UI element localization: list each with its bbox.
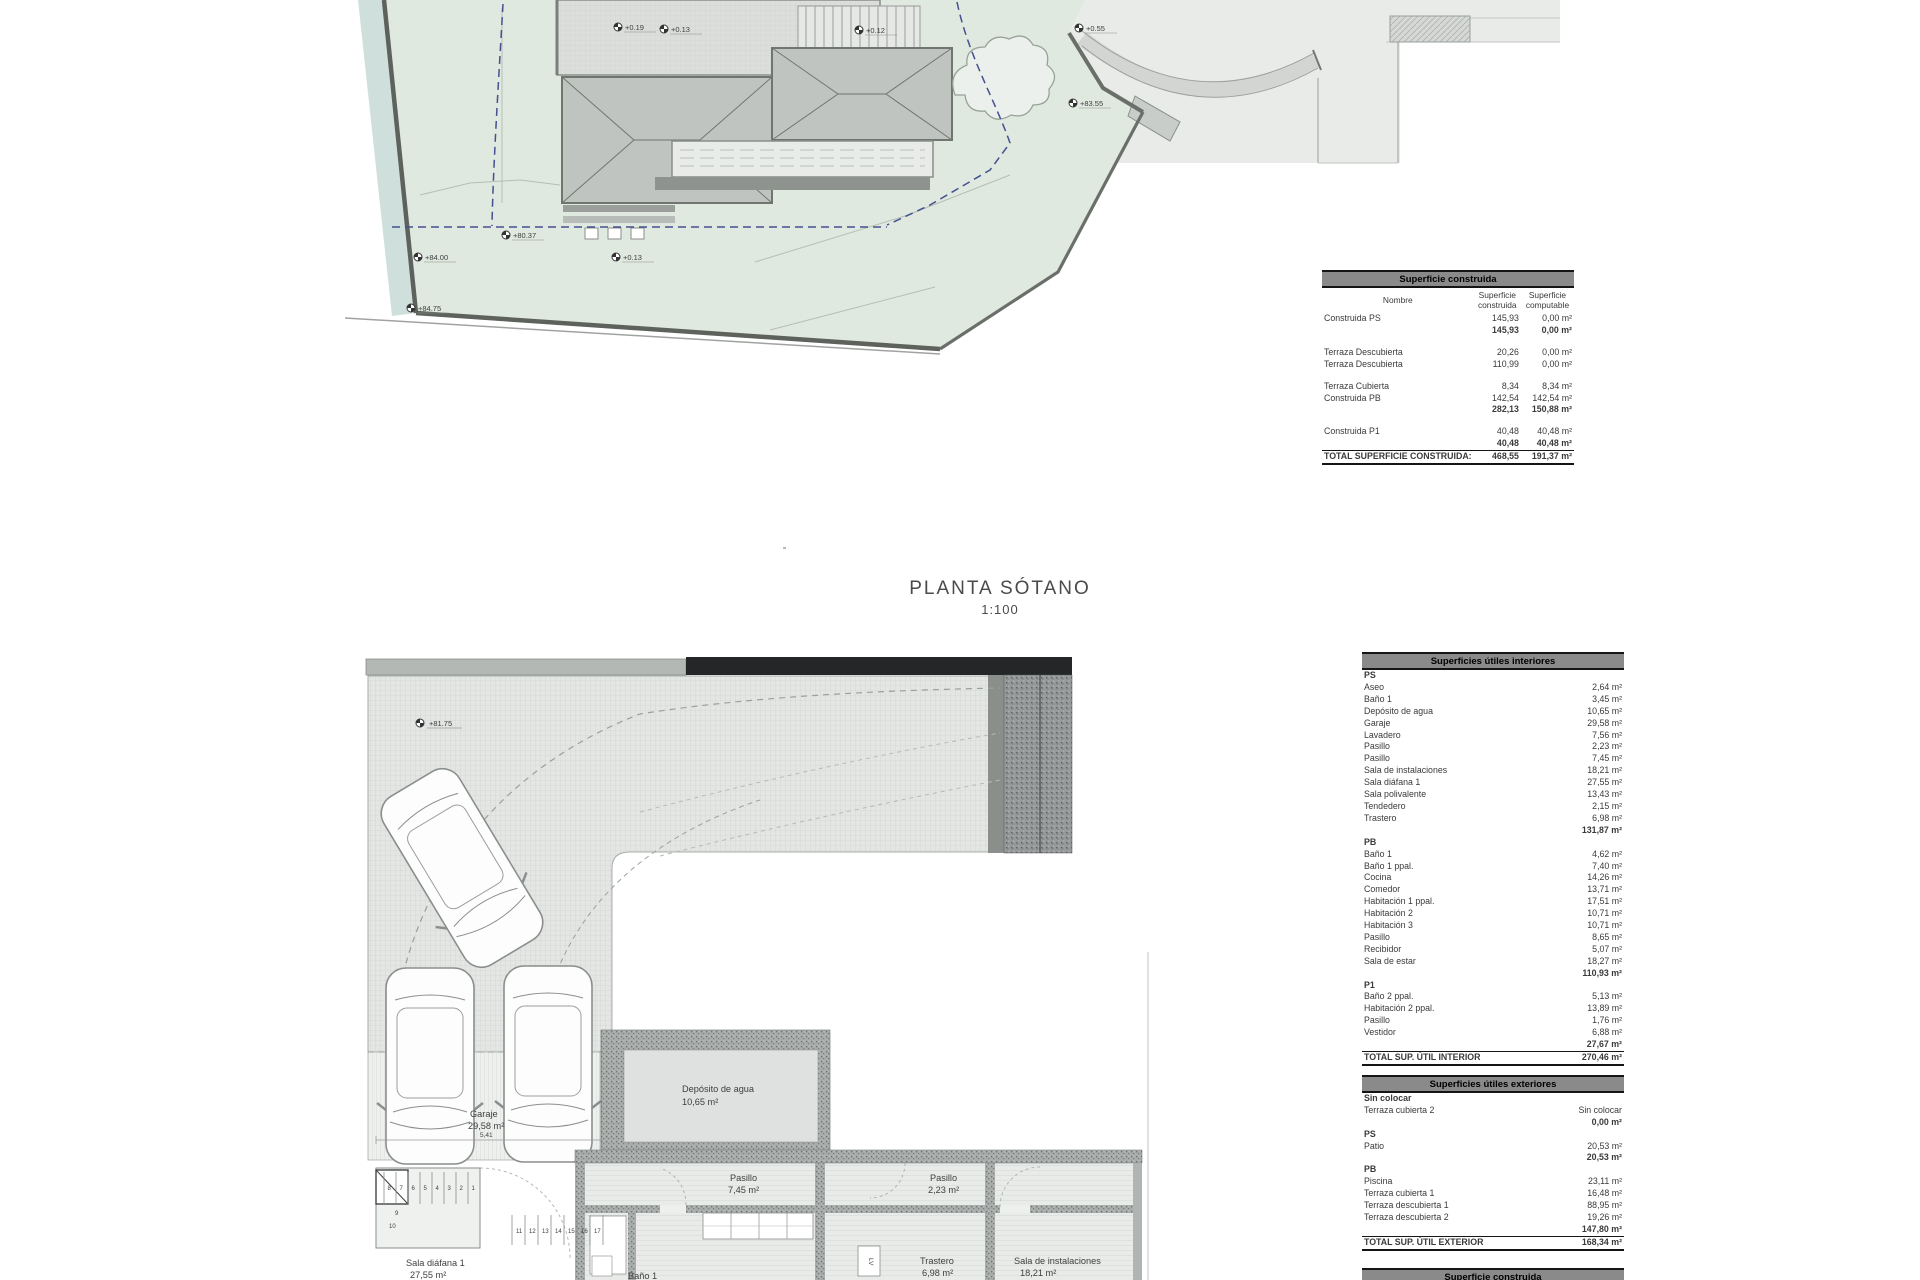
table-row [1322,416,1574,426]
table-title: Superficies útiles interiores [1362,652,1624,670]
table-row: Construida PB142,54142,54 m² [1322,393,1574,405]
table-row: Trastero6,98 m² [1362,813,1624,825]
basement-plan-drawing: 5,41 5,20 2,84 7,46 [360,650,1160,1280]
table-row: Sala de instalaciones18,21 m² [1362,765,1624,777]
stair-number: 15 [568,1229,575,1235]
table-row: Cocina14,26 m² [1362,872,1624,884]
benchmark-label: +0.13 [623,253,642,262]
table-row: Terraza descubierta 188,95 m² [1362,1200,1624,1212]
room-label: Sala de instalaciones [1014,1256,1101,1266]
table-row: Baño 13,45 m² [1362,694,1624,706]
room-area: 29,58 m² [468,1121,504,1131]
benchmark-label: +0.12 [866,26,885,35]
table-row: Lavadero7,56 m² [1362,730,1624,742]
table-row: 145,930,00 m² [1322,325,1574,337]
room-area: 27,55 m² [410,1270,446,1280]
table-row: 110,93 m² [1362,968,1624,980]
car-parked-2 [495,966,601,1162]
superficie-construida-table: Superficie construida NombreSuperficie c… [1322,270,1574,465]
top-wall-gray [366,659,686,675]
benchmark-label: +0.55 [1086,24,1105,33]
table-title: Superficies útiles exteriores [1362,1075,1624,1093]
table-row: Terraza Descubierta110,990,00 m² [1322,359,1574,371]
table-row: Vestidor6,88 m² [1362,1027,1624,1039]
benchmark-icon [407,304,415,312]
table-title: Superficie construida [1362,1268,1624,1280]
table-row: 131,87 m² [1362,825,1624,837]
benchmark-label: +84.00 [425,253,448,262]
benchmark-icon [612,253,620,261]
svg-text:+81.75: +81.75 [429,719,452,728]
room-label: Pasillo [730,1173,757,1183]
room-label: Baño 1 [628,1271,657,1280]
room-label: Garaje [470,1109,498,1119]
room-area: 7,45 m² [728,1185,759,1195]
table-row: 282,13150,88 m² [1322,404,1574,416]
table-row: 27,67 m² [1362,1039,1624,1051]
room-area: 6,98 m² [922,1268,953,1278]
table-row: 40,4840,48 m² [1322,438,1574,450]
next-table-cutoff: Superficie construida [1362,1268,1624,1280]
benchmark-label: +80.37 [513,231,536,240]
table-row: PB [1362,1164,1624,1176]
table-row: Habitación 210,71 m² [1362,908,1624,920]
table-row: Patio20,53 m² [1362,1141,1624,1153]
table-row: Pasillo7,45 m² [1362,753,1624,765]
table-row: Pasillo2,23 m² [1362,741,1624,753]
benchmark-icon [660,25,668,33]
table-row [1322,337,1574,347]
plan-title: PLANTA SÓTANO 1:100 [880,578,1120,617]
table-row: 0,00 m² [1362,1117,1624,1129]
dot-artifact [783,547,786,549]
plan-sheet: +0.19+0.13+0.12+0.55+83.55+0.13+80.37+84… [0,0,1920,1280]
table-row: TOTAL SUP. ÚTIL EXTERIOR168,34 m² [1362,1236,1624,1249]
stair-number: 12 [529,1229,536,1235]
table-row: Terraza Cubierta8,348,34 m² [1322,381,1574,393]
road-area [1060,0,1560,163]
table-row: PS [1362,670,1624,682]
table-row: PB [1362,837,1624,849]
benchmark-label: +83.55 [1080,99,1103,108]
table-row: 20,53 m² [1362,1152,1624,1164]
table-row: Aseo2,64 m² [1362,682,1624,694]
car-parked-1 [377,968,483,1164]
stairs: 87654321 11121314151617 910 [376,1168,603,1248]
pool-terrace [655,141,933,190]
benchmark-icon [414,253,422,261]
table-row: Construida P140,4840,48 m² [1322,426,1574,438]
table-row: Terraza cubierta 116,48 m² [1362,1188,1624,1200]
stair-number: 11 [516,1229,523,1235]
table-row: Pasillo1,76 m² [1362,1015,1624,1027]
appliance-label: LV [867,1258,874,1266]
table-row: Habitación 1 ppal.17,51 m² [1362,896,1624,908]
table-row: Sala polivalente13,43 m² [1362,789,1624,801]
room-label: Trastero [920,1256,954,1266]
benchmark-icon [614,23,622,31]
stair-number: 13 [542,1229,549,1235]
table-row: Terraza cubierta 2Sin colocar [1362,1105,1624,1117]
dim-label: 5,41 [480,1132,493,1139]
road-crossing-hatch [1390,16,1470,42]
plan-scale: 1:100 [880,602,1120,617]
table-row: 147,80 m² [1362,1224,1624,1236]
table-row: Terraza descubierta 219,26 m² [1362,1212,1624,1224]
top-wall-black [686,657,1072,675]
benchmark-icon [855,26,863,34]
terrain-section [988,675,1072,853]
right-tables-column: Superficies útiles interiores PS Aseo2,6… [1362,652,1624,1251]
table-row: Sin colocar [1362,1093,1624,1105]
room-label: Sala diáfana 1 [406,1258,465,1268]
table-row: Piscina23,11 m² [1362,1176,1624,1188]
room-label: Pasillo [930,1173,957,1183]
table-col-headers: NombreSuperficie construidaSuperficie co… [1322,288,1574,313]
table-row: Comedor13,71 m² [1362,884,1624,896]
benchmark-icon [1069,99,1077,107]
table-row [1322,371,1574,381]
table-row: Sala de estar18,27 m² [1362,956,1624,968]
table-row: P1 [1362,980,1624,992]
table-row: Depósito de agua10,65 m² [1362,706,1624,718]
table-row: Baño 14,62 m² [1362,849,1624,861]
table-row: Habitación 2 ppal.13,89 m² [1362,1003,1624,1015]
benchmark-label: +84.75 [418,304,441,313]
stair-number: 10 [389,1224,396,1230]
plan-title-text: PLANTA SÓTANO [880,578,1120,600]
table-row: Baño 1 ppal.7,40 m² [1362,861,1624,873]
benchmark-icon [1075,24,1083,32]
stair-number: 17 [594,1229,601,1235]
table-row: Recibidor5,07 m² [1362,944,1624,956]
table-title: Superficie construida [1322,270,1574,288]
benchmark-label: +0.19 [625,23,644,32]
room-label: Depósito de agua [682,1084,755,1094]
stair-number: 14 [555,1229,562,1235]
table-row: Baño 2 ppal.5,13 m² [1362,991,1624,1003]
table-row: Sala diáfana 127,55 m² [1362,777,1624,789]
superficies-exteriores-table: Superficies útiles exteriores Sin coloca… [1362,1075,1624,1251]
table-row: Pasillo8,65 m² [1362,932,1624,944]
superficies-interiores-table: Superficies útiles interiores PS Aseo2,6… [1362,652,1624,1066]
table-row: Garaje29,58 m² [1362,718,1624,730]
table-row: PS [1362,1129,1624,1141]
table-row: Habitación 310,71 m² [1362,920,1624,932]
room-area: 2,23 m² [928,1185,959,1195]
room-area: 18,21 m² [1020,1268,1056,1278]
stair-number: 16 [581,1229,588,1235]
table-row: Terraza Descubierta20,260,00 m² [1322,347,1574,359]
benchmark-label: +0.13 [671,25,690,34]
benchmark-icon [502,231,510,239]
room-area: 10,65 m² [682,1097,718,1107]
table-row: TOTAL SUPERFICIE CONSTRUIDA:468,55191,37… [1322,451,1574,464]
table-row: Tendedero2,15 m² [1362,801,1624,813]
table-row: Construida PS145,930,00 m² [1322,313,1574,325]
table-row: TOTAL SUP. ÚTIL INTERIOR270,46 m² [1362,1052,1624,1065]
